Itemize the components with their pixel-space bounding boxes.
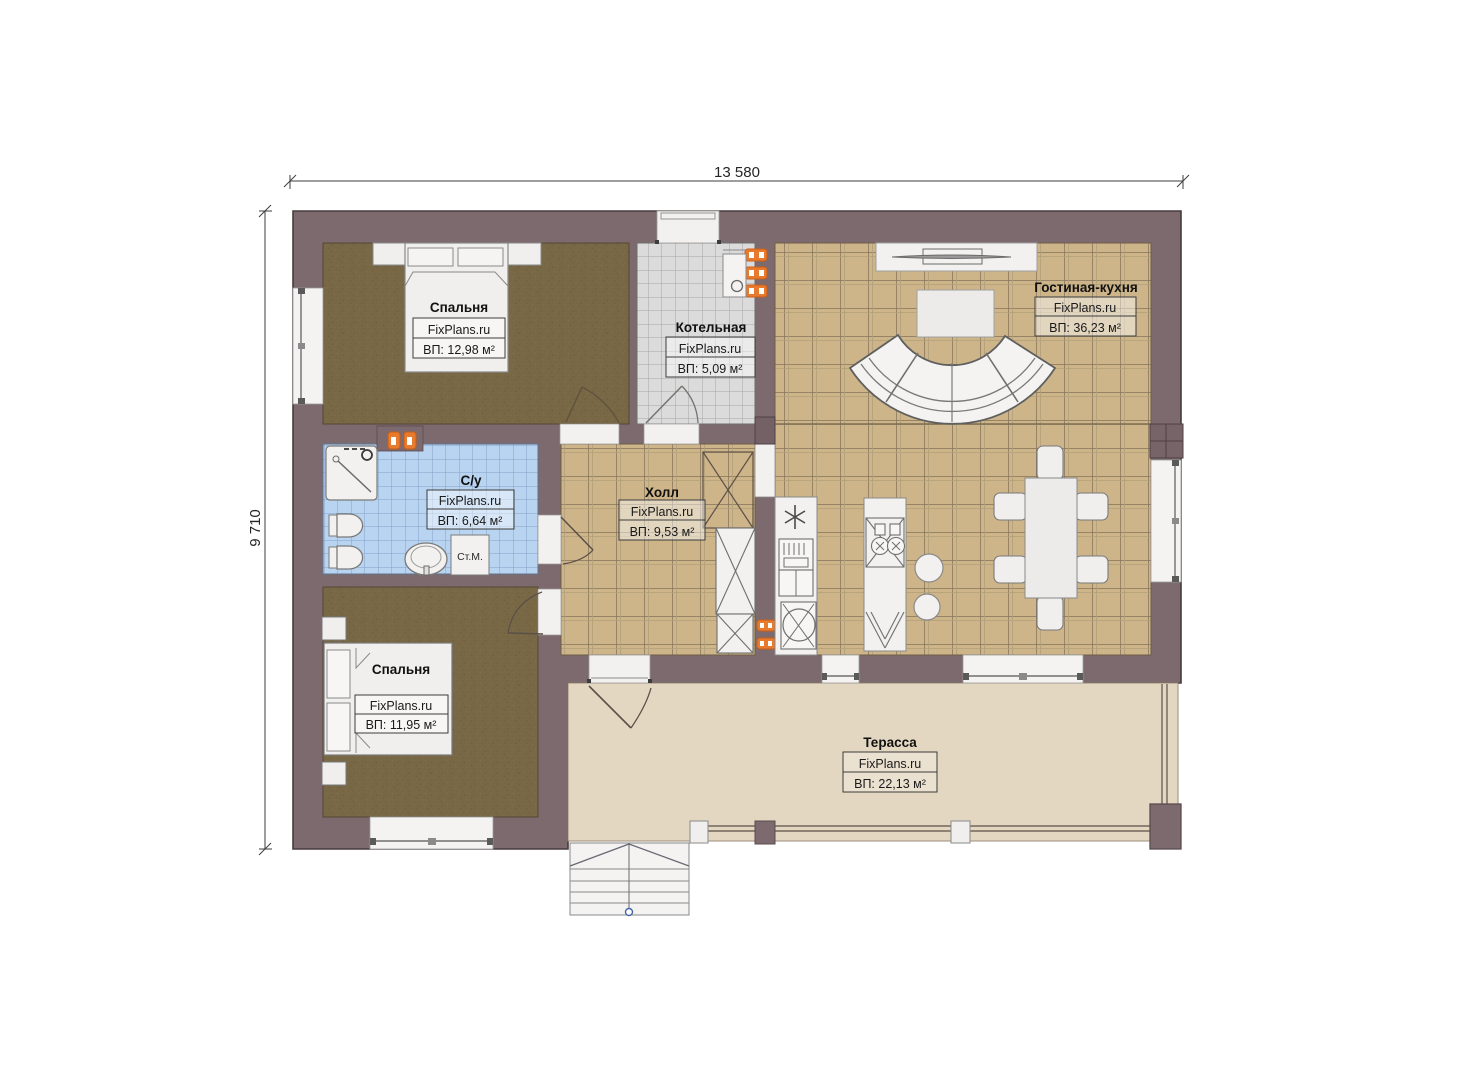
svg-text:ВП: 9,53 м²: ВП: 9,53 м² [630, 525, 695, 539]
svg-text:ВП: 6,64 м²: ВП: 6,64 м² [438, 514, 503, 528]
svg-text:ВП: 12,98 м²: ВП: 12,98 м² [423, 343, 495, 357]
svg-text:ВП: 22,13 м²: ВП: 22,13 м² [854, 777, 926, 791]
svg-text:FixPlans.ru: FixPlans.ru [679, 342, 742, 356]
svg-text:Спальня: Спальня [372, 662, 430, 677]
svg-text:ВП: 11,95 м²: ВП: 11,95 м² [366, 718, 437, 732]
svg-text:FixPlans.ru: FixPlans.ru [370, 699, 433, 713]
svg-text:FixPlans.ru: FixPlans.ru [1054, 301, 1117, 315]
svg-text:FixPlans.ru: FixPlans.ru [439, 494, 502, 508]
svg-text:С/у: С/у [460, 473, 482, 488]
svg-text:Ст.М.: Ст.М. [457, 551, 483, 563]
svg-text:13 580: 13 580 [714, 164, 760, 181]
svg-text:FixPlans.ru: FixPlans.ru [631, 505, 694, 519]
svg-text:Котельная: Котельная [676, 320, 747, 335]
svg-text:Терасса: Терасса [863, 735, 917, 750]
svg-text:FixPlans.ru: FixPlans.ru [859, 757, 922, 771]
svg-text:ВП: 5,09 м²: ВП: 5,09 м² [678, 362, 743, 376]
svg-text:Спальня: Спальня [430, 300, 488, 315]
svg-text:FixPlans.ru: FixPlans.ru [428, 323, 491, 337]
svg-text:9 710: 9 710 [247, 509, 264, 547]
svg-text:Холл: Холл [645, 485, 679, 500]
svg-text:ВП: 36,23 м²: ВП: 36,23 м² [1049, 321, 1121, 335]
svg-text:Гостиная-кухня: Гостиная-кухня [1034, 280, 1137, 295]
